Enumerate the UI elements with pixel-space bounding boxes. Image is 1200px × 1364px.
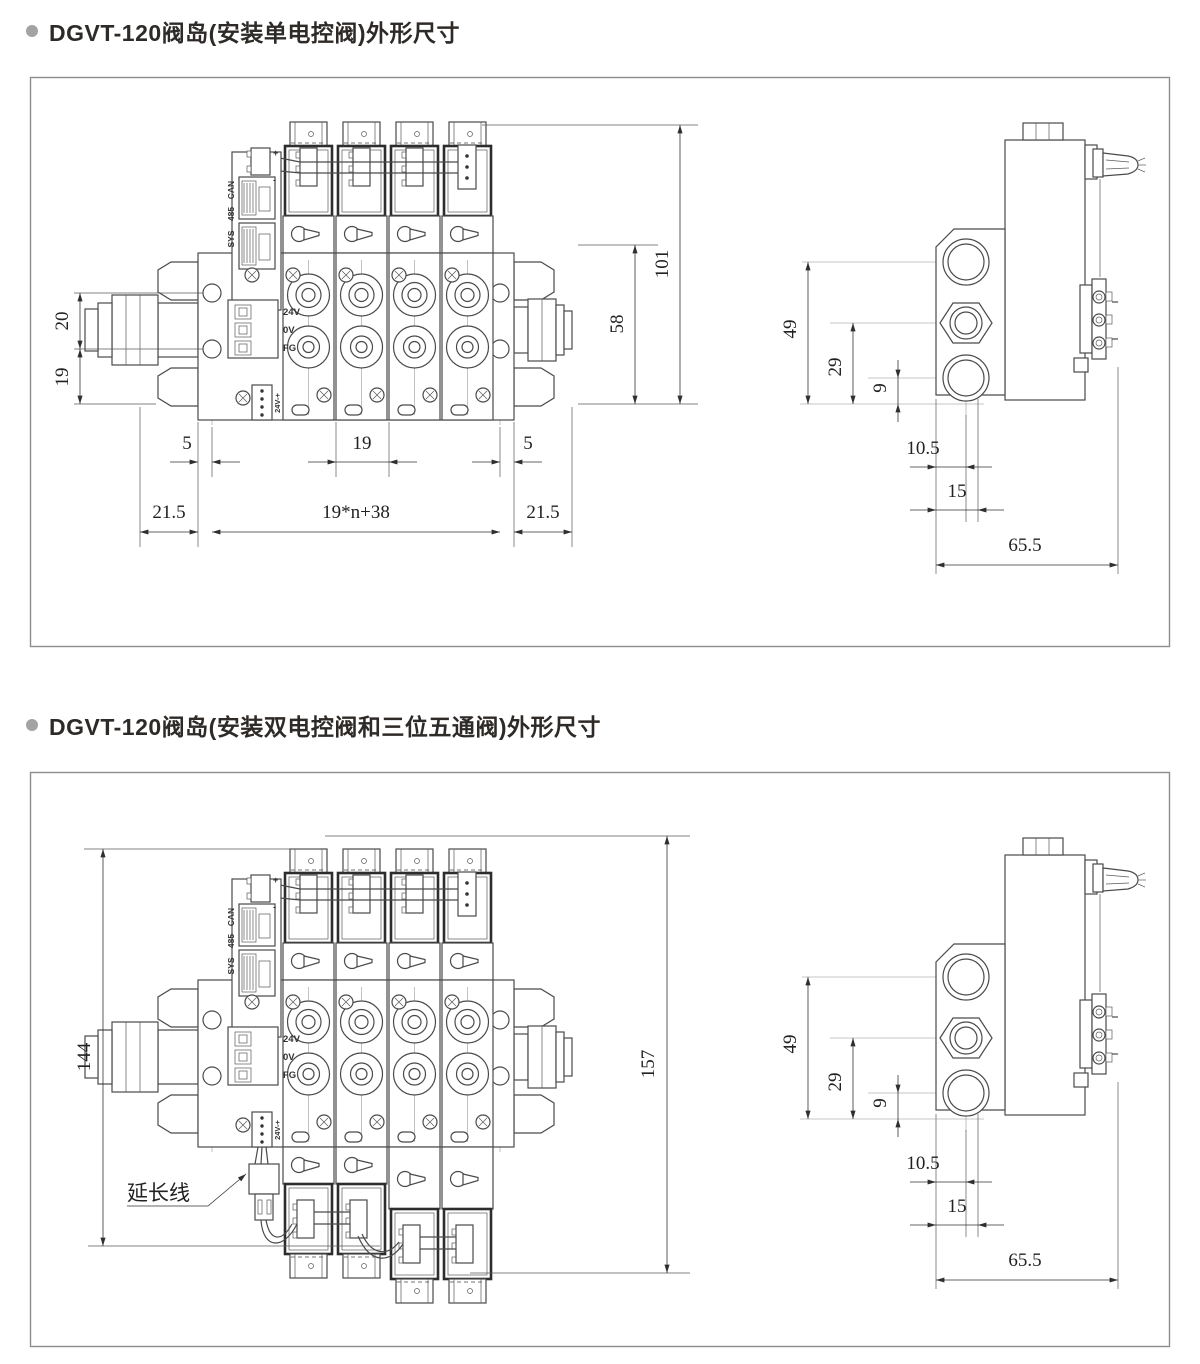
label-fg: FG bbox=[283, 343, 296, 354]
dim-144: 144 bbox=[74, 1042, 95, 1071]
label-can: CAN bbox=[226, 181, 236, 199]
dim-9: 9 bbox=[870, 383, 891, 393]
label-sys: SYS bbox=[226, 230, 236, 247]
label-power: 24V-+ bbox=[273, 392, 282, 412]
label-plus: + bbox=[273, 148, 278, 158]
page: { "panel1": { "heading": "DGVT-120阀岛(安装单… bbox=[0, 0, 1200, 1364]
label-fg: FG bbox=[283, 1070, 296, 1081]
dim-49: 49 bbox=[780, 320, 801, 339]
dim-9: 9 bbox=[870, 1098, 891, 1108]
dim-20: 20 bbox=[52, 312, 73, 331]
dim-formula: 19*n+38 bbox=[322, 502, 390, 523]
dim-15: 15 bbox=[948, 1196, 967, 1217]
dim-10-5: 10.5 bbox=[906, 438, 939, 459]
label-0v: 0V bbox=[283, 325, 295, 336]
dim-19-left: 19 bbox=[52, 368, 73, 387]
side-view-single-solenoid: 49 29 9 10.5 15 65.5 bbox=[780, 123, 1146, 574]
label-485: 485 bbox=[226, 934, 236, 948]
label-minus: - bbox=[273, 902, 276, 912]
label-24v: 24V bbox=[283, 1034, 301, 1045]
dim-65-5: 65.5 bbox=[1008, 535, 1041, 556]
dim-101: 101 bbox=[652, 250, 673, 279]
dim-49: 49 bbox=[780, 1035, 801, 1054]
dim-65-5: 65.5 bbox=[1008, 1250, 1041, 1271]
label-485: 485 bbox=[226, 207, 236, 221]
label-extension-cable: 延长线 bbox=[127, 1181, 190, 1205]
front-view-single-solenoid: CAN 485 SYS 24V 0V FG 24V-+ + - 20 19 58… bbox=[52, 122, 698, 547]
dim-15: 15 bbox=[948, 481, 967, 502]
label-0v: 0V bbox=[283, 1052, 295, 1063]
label-can: CAN bbox=[226, 908, 236, 926]
dim-19-pitch: 19 bbox=[353, 433, 372, 454]
label-sys: SYS bbox=[226, 957, 236, 974]
dim-29: 29 bbox=[825, 358, 846, 377]
label-minus: - bbox=[273, 175, 276, 185]
front-view-double-solenoid: 延长线 CAN 485 SYS 24V 0V FG 24V-+ + - 144 … bbox=[74, 836, 690, 1303]
dim-157: 157 bbox=[638, 1050, 659, 1079]
dim-58: 58 bbox=[607, 315, 628, 334]
dim-21-5-right: 21.5 bbox=[526, 502, 559, 523]
panel1-drawing: CAN 485 SYS 24V 0V FG 24V-+ + - 20 19 58… bbox=[31, 78, 1170, 647]
technical-drawings: CAN 485 SYS 24V 0V FG 24V-+ + - 20 19 58… bbox=[0, 0, 1200, 1364]
dim-29: 29 bbox=[825, 1073, 846, 1092]
dim-5-right: 5 bbox=[523, 433, 533, 454]
side-view-double-solenoid: 49 29 9 10.5 15 65.5 bbox=[780, 838, 1146, 1289]
dim-5-left: 5 bbox=[182, 433, 192, 454]
panel2-drawing: 延长线 CAN 485 SYS 24V 0V FG 24V-+ + - 144 … bbox=[31, 773, 1170, 1347]
dim-21-5-left: 21.5 bbox=[152, 502, 185, 523]
label-power: 24V-+ bbox=[273, 1119, 282, 1139]
dim-10-5: 10.5 bbox=[906, 1153, 939, 1174]
label-plus: + bbox=[273, 875, 278, 885]
label-24v: 24V bbox=[283, 307, 301, 318]
